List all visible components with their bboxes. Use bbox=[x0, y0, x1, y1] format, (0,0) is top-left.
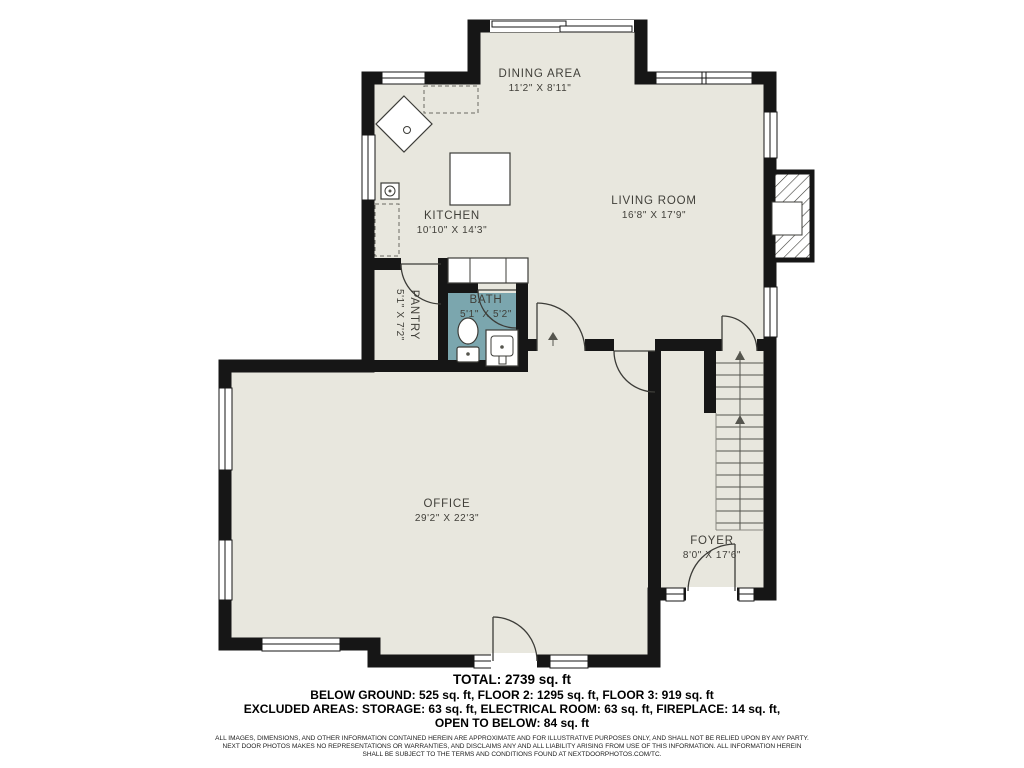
fireplace bbox=[772, 172, 812, 260]
window-living-right-lower bbox=[764, 287, 777, 337]
floor-areas: BELOW GROUND: 525 sq. ft, FLOOR 2: 1295 … bbox=[0, 688, 1024, 702]
room-name: PANTRY bbox=[408, 289, 420, 341]
total-area: TOTAL: 2739 sq. ft bbox=[0, 672, 1024, 688]
window-kitchen-top bbox=[382, 72, 425, 84]
room-label-living: LIVING ROOM 16'8" X 17'9" bbox=[611, 195, 696, 221]
room-label-kitchen: KITCHEN 10'10" X 14'3" bbox=[417, 210, 487, 236]
room-dims: 5'1" X 7'2" bbox=[394, 289, 405, 341]
window-kitchen-left bbox=[362, 135, 375, 200]
room-name: LIVING ROOM bbox=[611, 195, 696, 207]
disclaimer-line: ALL IMAGES, DIMENSIONS, AND OTHER INFORM… bbox=[0, 735, 1024, 743]
window-office-bottom-mid bbox=[474, 655, 492, 668]
room-name: KITCHEN bbox=[417, 210, 487, 222]
room-label-office: OFFICE 29'2" X 22'3" bbox=[415, 498, 479, 524]
vanity-sink bbox=[486, 330, 518, 366]
room-name: FOYER bbox=[683, 535, 741, 547]
area-summary: TOTAL: 2739 sq. ft BELOW GROUND: 525 sq.… bbox=[0, 672, 1024, 759]
room-label-dining: DINING AREA 11'2" X 8'11" bbox=[499, 68, 582, 94]
floor-plan-drawing bbox=[0, 0, 1024, 768]
excluded-areas: EXCLUDED AREAS: STORAGE: 63 sq. ft, ELEC… bbox=[0, 702, 1024, 716]
window-office-bottom-right bbox=[550, 655, 588, 668]
kitchen-island bbox=[450, 153, 510, 205]
room-name: BATH bbox=[460, 294, 512, 306]
counter-by-bath bbox=[448, 258, 528, 283]
disclaimer: ALL IMAGES, DIMENSIONS, AND OTHER INFORM… bbox=[0, 735, 1024, 759]
room-dims: 8'0" X 17'6" bbox=[683, 550, 741, 561]
window-living-right-upper bbox=[764, 112, 777, 158]
floor-plan-canvas: DINING AREA 11'2" X 8'11" LIVING ROOM 16… bbox=[0, 0, 1024, 768]
window-office-bottom-left bbox=[262, 638, 340, 651]
front-door-opening bbox=[686, 587, 737, 602]
window-office-left-upper bbox=[219, 388, 232, 470]
room-dims: 16'8" X 17'9" bbox=[611, 210, 696, 221]
room-dims: 11'2" X 8'11" bbox=[499, 83, 582, 94]
room-label-foyer: FOYER 8'0" X 17'6" bbox=[683, 535, 741, 561]
disclaimer-line: SHALL BE SUBJECT TO THE TERMS AND CONDIT… bbox=[0, 751, 1024, 759]
toilet bbox=[458, 318, 478, 344]
window-foyer-right bbox=[739, 588, 754, 601]
room-label-bath: BATH 5'1" X 5'2" bbox=[460, 294, 512, 320]
room-dims: 10'10" X 14'3" bbox=[417, 225, 487, 236]
window-office-left-lower bbox=[219, 540, 232, 600]
window-living-top bbox=[656, 72, 752, 84]
room-name: OFFICE bbox=[415, 498, 479, 510]
room-dims: 5'1" X 5'2" bbox=[460, 309, 512, 320]
office-door-opening bbox=[491, 653, 537, 669]
room-dims: 29'2" X 22'3" bbox=[415, 513, 479, 524]
disclaimer-line: NEXT DOOR PHOTOS MAKES NO REPRESENTATION… bbox=[0, 743, 1024, 751]
room-label-pantry: PANTRY 5'1" X 7'2" bbox=[394, 289, 420, 341]
open-to-below-area: OPEN TO BELOW: 84 sq. ft bbox=[0, 716, 1024, 730]
window-foyer-left bbox=[666, 588, 684, 601]
sliding-door-dining bbox=[490, 20, 634, 32]
room-name: DINING AREA bbox=[499, 68, 582, 80]
